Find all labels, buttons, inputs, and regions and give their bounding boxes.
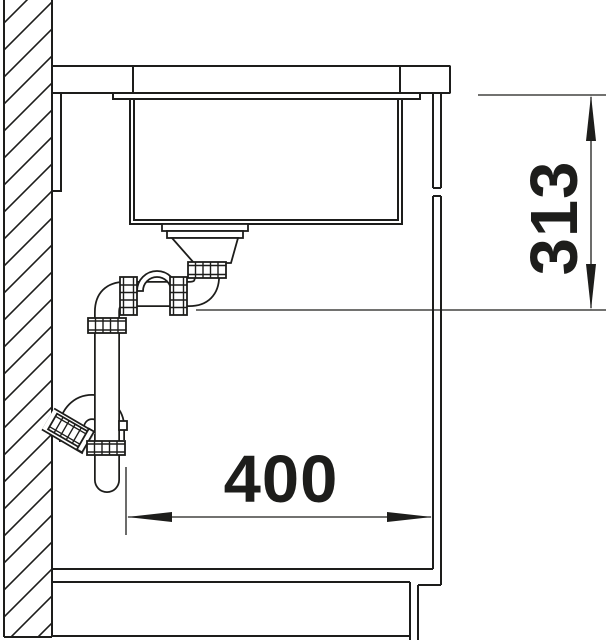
drawing-canvas: 313 400	[0, 0, 609, 640]
dimension-label-400: 400	[224, 442, 339, 517]
arrow-up-icon	[586, 95, 596, 141]
cabinet-side-panel	[433, 93, 441, 585]
technical-drawing: 313 400	[0, 0, 609, 640]
union-nut-left	[120, 277, 137, 315]
cabinet-floor	[52, 569, 433, 582]
wall-hatch	[4, 0, 52, 637]
vertical-pipe-nut-upper	[88, 318, 126, 333]
dimension-label-313: 313	[517, 161, 592, 276]
strainer-flange-upper	[162, 224, 248, 231]
cabinet-back-rail	[52, 93, 61, 191]
wall-section	[4, 0, 52, 637]
basin-inner-wall	[134, 99, 398, 220]
fitting-tab	[119, 421, 127, 430]
strainer-coupling-nut	[188, 262, 226, 278]
counter-cut-section-right	[400, 66, 450, 93]
union-nut-right	[170, 277, 187, 315]
strainer-flange-lower	[167, 231, 243, 238]
arrow-left-icon	[127, 512, 172, 522]
vertical-pipe-nut-lower	[87, 441, 125, 455]
basin-outer-wall	[130, 99, 402, 224]
sink-basin	[130, 99, 402, 224]
siphon-assembly	[47, 224, 248, 480]
dimension-horizontal-400: 400	[126, 442, 432, 535]
counter-outline	[52, 66, 450, 93]
toe-kick-panel	[410, 569, 441, 640]
strainer-cup	[172, 238, 238, 263]
arrow-right-icon	[387, 512, 432, 522]
countertop	[52, 66, 450, 99]
counter-cut-section-left	[52, 66, 133, 93]
